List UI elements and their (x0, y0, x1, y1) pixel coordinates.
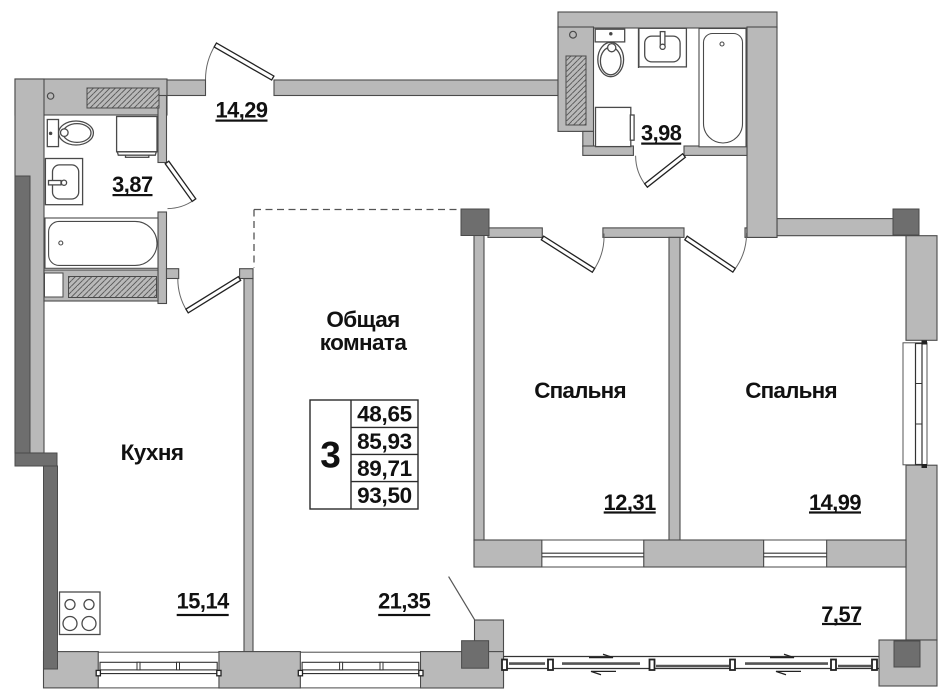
svg-text:21,35: 21,35 (378, 588, 430, 613)
svg-text:48,65: 48,65 (357, 402, 412, 427)
svg-text:85,93: 85,93 (357, 429, 412, 454)
svg-text:Спальня: Спальня (745, 378, 837, 403)
svg-text:Общая: Общая (326, 307, 399, 332)
svg-text:15,14: 15,14 (177, 588, 229, 613)
svg-text:3,87: 3,87 (112, 172, 153, 197)
svg-text:93,50: 93,50 (357, 483, 412, 508)
svg-text:3,98: 3,98 (641, 121, 682, 146)
svg-text:12,31: 12,31 (604, 490, 656, 515)
svg-text:Спальня: Спальня (534, 378, 626, 403)
svg-text:14,99: 14,99 (809, 490, 861, 515)
svg-text:Кухня: Кухня (121, 440, 184, 465)
svg-text:комната: комната (320, 330, 408, 355)
svg-text:3: 3 (320, 435, 341, 476)
svg-text:89,71: 89,71 (357, 456, 412, 481)
svg-text:14,29: 14,29 (215, 98, 267, 123)
